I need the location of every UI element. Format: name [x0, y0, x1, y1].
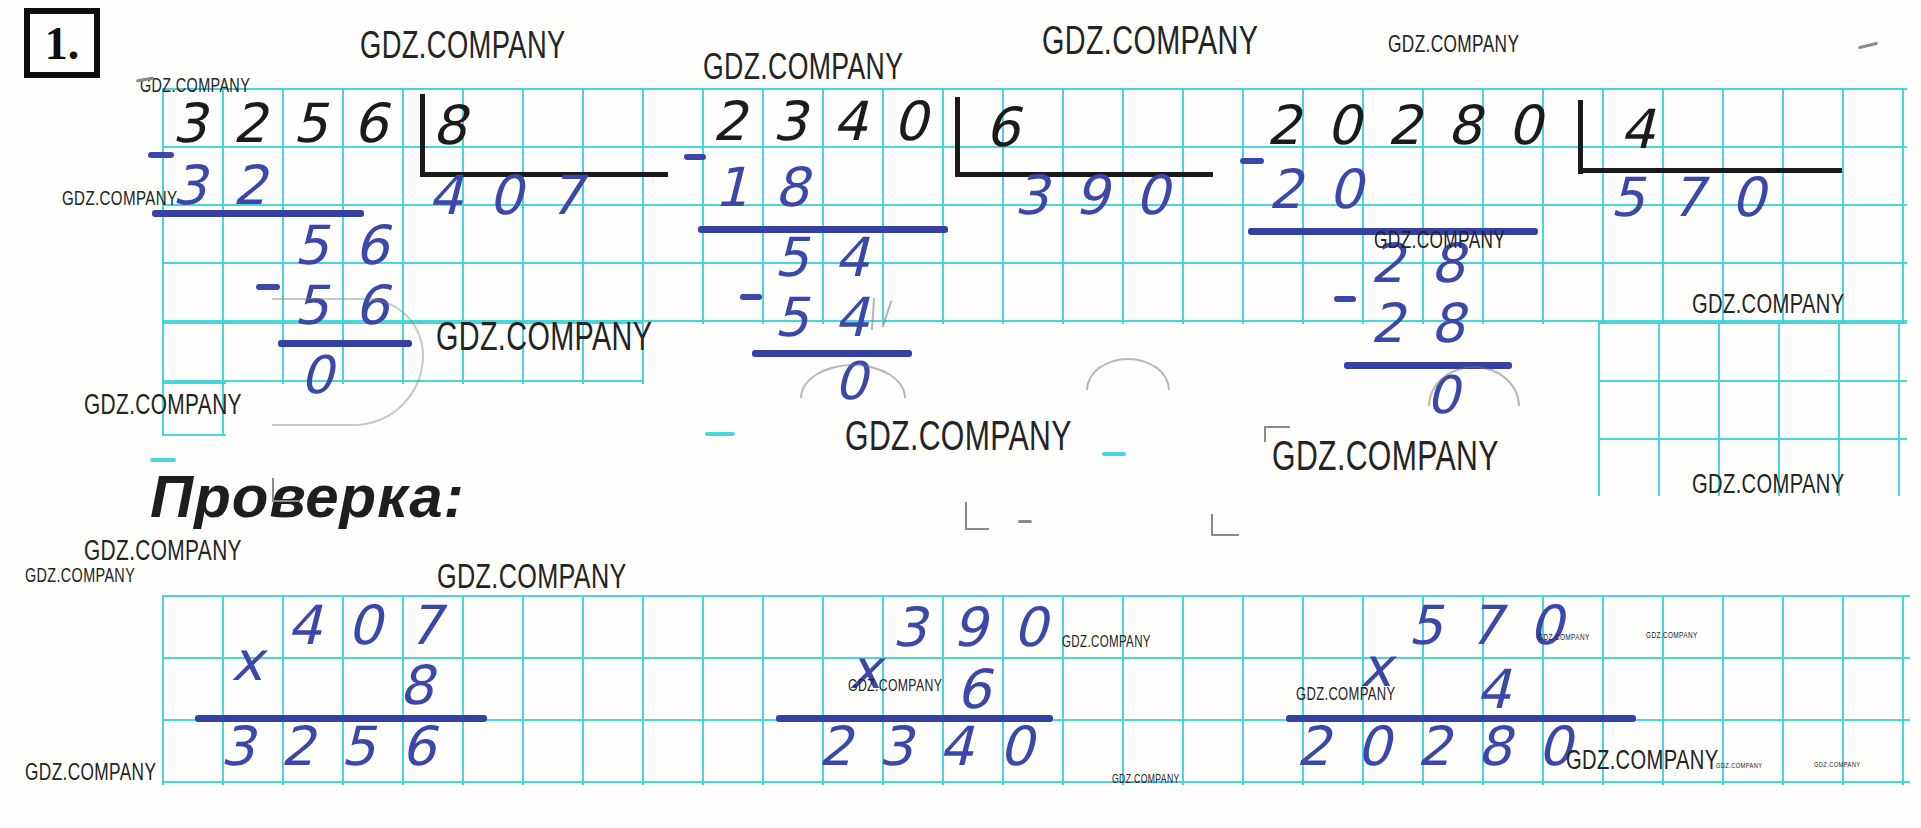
watermark: GDZ.COMPANY: [1692, 468, 1845, 500]
watermark: GDZ.COMPANY: [1716, 761, 1762, 770]
task-number: 1.: [45, 17, 80, 70]
multiplication1-multiplicand: 407: [287, 598, 468, 654]
division2-step2: 54: [774, 230, 895, 286]
watermark: GDZ.COMPANY: [848, 676, 942, 696]
watermark: GDZ.COMPANY: [1112, 772, 1180, 786]
division1-minus1: [148, 152, 174, 158]
watermark: GDZ.COMPANY: [845, 412, 1072, 460]
verification-heading: Проверка:: [150, 462, 465, 531]
artifact-grid-remnant: [150, 458, 176, 462]
division3-quotient: 570: [1610, 170, 1791, 226]
multiplication1-product: 3256: [220, 719, 461, 775]
watermark: GDZ.COMPANY: [703, 46, 903, 88]
division1-dividend: 3256: [172, 96, 413, 152]
division1-step2: 56: [294, 218, 415, 274]
division1-step1: 32: [172, 158, 293, 214]
task-number-box: 1.: [24, 8, 100, 78]
division3-step1: 20: [1268, 162, 1389, 218]
division1-minus2: [256, 284, 280, 290]
multiplication3-multiplier: 4: [1476, 662, 1510, 718]
watermark: GDZ.COMPANY: [62, 186, 177, 210]
artifact-corner-mark: [1211, 514, 1239, 536]
worksheet-scan: 1. 3256 8 407 32 56 56 0 2340 6 390 18 5…: [0, 0, 1921, 828]
watermark: GDZ.COMPANY: [1062, 633, 1151, 651]
division2-rule2: [752, 350, 912, 357]
division1-quotient: 407: [428, 168, 609, 224]
division2-quotient: 390: [1014, 168, 1195, 224]
artifact-arc: [1086, 358, 1170, 390]
division3-minus1: [1240, 158, 1264, 164]
division3-bracket-vertical: [1578, 100, 1583, 174]
multiplication2-product: 2340: [818, 719, 1059, 775]
multiplication1-multiplier: 8: [399, 658, 433, 714]
watermark: GDZ.COMPANY: [360, 24, 566, 67]
watermark: GDZ.COMPANY: [1388, 30, 1519, 58]
watermark: GDZ.COMPANY: [1374, 226, 1505, 254]
division2-step3: 54: [774, 290, 895, 346]
division2-minus2: [740, 294, 762, 300]
watermark: GDZ.COMPANY: [436, 314, 652, 359]
artifact-dash: [1858, 42, 1878, 50]
division3-step3: 28: [1370, 296, 1491, 352]
artifact-ghost-glyph: [272, 298, 424, 426]
division2-bracket-vertical: [955, 97, 960, 177]
watermark: GDZ.COMPANY: [1538, 632, 1590, 642]
division2-step1: 18: [714, 160, 835, 216]
division2-dividend: 2340: [712, 94, 953, 150]
artifact-dash: [1018, 520, 1032, 523]
multiplication2-multiplicand: 390: [892, 600, 1073, 656]
multiplication2-multiplier: 6: [956, 662, 990, 718]
watermark: GDZ.COMPANY: [1042, 18, 1258, 63]
division1-divisor: 8: [432, 98, 466, 154]
watermark: GDZ.COMPANY: [25, 564, 135, 587]
division1-bracket-vertical: [420, 94, 425, 176]
multiplication3-product: 20280: [1296, 719, 1598, 775]
division2-divisor: 6: [985, 100, 1019, 156]
watermark: GDZ.COMPANY: [84, 388, 242, 421]
division3-dividend: 20280: [1266, 98, 1568, 154]
artifact-grid-remnant: [705, 432, 735, 436]
artifact-grid-remnant: [1102, 452, 1126, 456]
watermark: GDZ.COMPANY: [1646, 630, 1698, 640]
watermark: GDZ.COMPANY: [25, 758, 156, 786]
artifact-corner-mark: [272, 478, 300, 502]
watermark: GDZ.COMPANY: [140, 74, 250, 97]
watermark: GDZ.COMPANY: [84, 534, 242, 567]
multiplication3-multiplicand: 570: [1408, 598, 1589, 654]
division3-minus2: [1334, 296, 1356, 302]
watermark: GDZ.COMPANY: [1814, 760, 1860, 769]
watermark: GDZ.COMPANY: [437, 556, 627, 596]
watermark: GDZ.COMPANY: [1692, 288, 1845, 320]
division2-minus1: [684, 154, 706, 160]
watermark: GDZ.COMPANY: [1566, 744, 1719, 776]
artifact-arc: [800, 364, 906, 398]
artifact-corner-mark: [965, 502, 989, 530]
division3-divisor: 4: [1620, 102, 1654, 158]
artifact-corner-mark: [1264, 426, 1290, 442]
multiplication1-sign: x: [231, 634, 263, 690]
watermark: GDZ.COMPANY: [1272, 432, 1499, 480]
watermark: GDZ.COMPANY: [1296, 684, 1395, 705]
